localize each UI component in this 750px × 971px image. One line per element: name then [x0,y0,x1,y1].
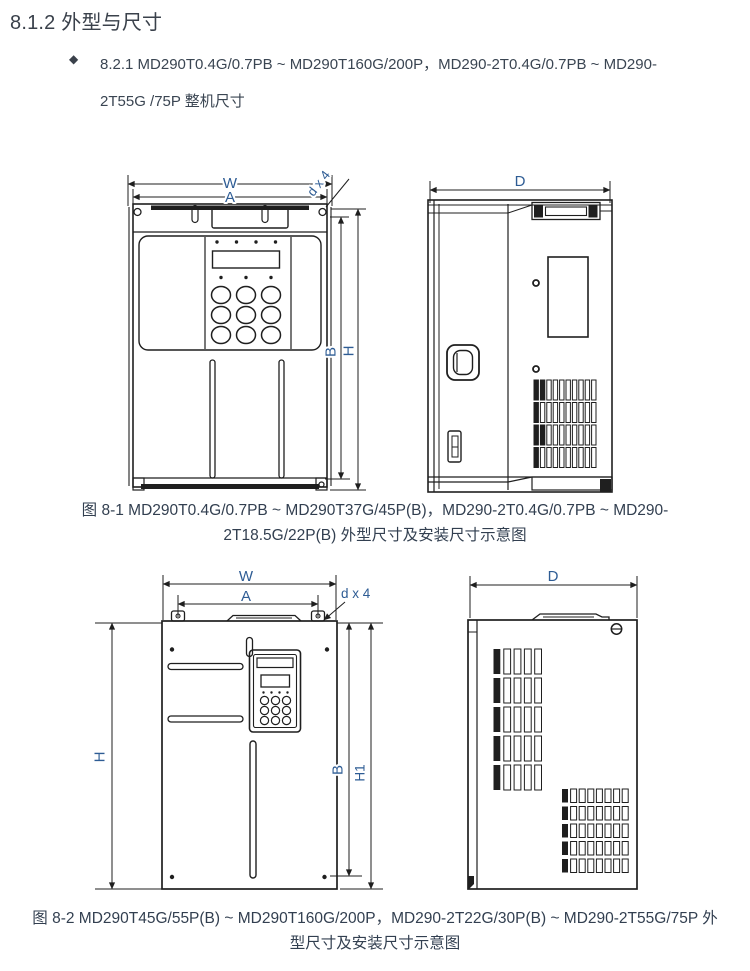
fig2-dim-label-b: B [330,765,347,775]
fig2-dim-label-h: H [92,752,109,763]
fig2-front-view: W A d x 4 H B H1 [92,568,384,889]
fig1-dim-label-d: D [515,173,526,190]
fig1-keypad [212,240,281,343]
figure-8-2-drawing: W A d x 4 H B H1 [0,550,750,895]
fig1-side-body [428,200,612,492]
figure-8-2-caption-line-2: 型尺寸及安装尺寸示意图 [0,931,750,956]
bullet-diamond-icon: ◆ [69,52,78,66]
fig1-side-view: D [428,173,612,492]
figure-8-2-caption: 图 8-2 MD290T45G/55P(B) ~ MD290T160G/200P… [0,906,750,956]
fig2-dim-label-a: A [241,588,251,605]
bullet-line-1: 8.2.1 MD290T0.4G/0.7PB ~ MD290T160G/200P… [100,46,657,83]
fig1-side-dimensions: D [430,173,610,203]
figure-8-1-caption: 图 8-1 MD290T0.4G/0.7PB ~ MD290T37G/45P(B… [0,498,750,548]
bullet-item: 8.2.1 MD290T0.4G/0.7PB ~ MD290T160G/200P… [100,46,657,120]
fig1-front-body [129,204,331,490]
manual-page: { "page": { "heading": "8.1.2 外型与尺寸", "b… [0,0,750,971]
fig2-dim-label-d: D [548,568,559,585]
fig2-dim-label-w: W [239,568,254,585]
fig2-side-vent-grid-upper [494,649,542,790]
figure-8-1-drawing: W A d x 4 B H [0,160,750,500]
fig1-front-view: W A d x 4 B H [128,168,366,490]
figure-8-1-caption-line-1: 图 8-1 MD290T0.4G/0.7PB ~ MD290T37G/45P(B… [0,498,750,523]
figure-8-2-caption-line-1: 图 8-2 MD290T45G/55P(B) ~ MD290T160G/200P… [0,906,750,931]
fig1-dim-label-a: A [225,189,235,206]
section-heading: 8.1.2 外型与尺寸 [10,6,162,35]
fig2-keypad [250,650,301,732]
fig1-dim-label-h: H [341,346,358,357]
fig2-side-dimensions: D [470,568,637,618]
fig2-side-body [468,614,637,889]
fig2-side-view: D [468,568,637,889]
fig1-front-dimensions: W A d x 4 B H [128,168,366,490]
bullet-line-2: 2T55G /75P 整机尺寸 [100,83,657,120]
figure-8-1-caption-line-2: 2T18.5G/22P(B) 外型尺寸及安装尺寸示意图 [0,523,750,548]
fig2-side-vent-grid-lower [562,789,628,873]
fig1-dim-label-dx4: d x 4 [304,168,333,199]
fig2-dim-label-h1: H1 [353,764,368,781]
fig1-side-vent-grid [534,380,596,468]
fig2-dim-label-dx4: d x 4 [341,586,371,601]
fig1-dim-label-b: B [323,347,340,357]
